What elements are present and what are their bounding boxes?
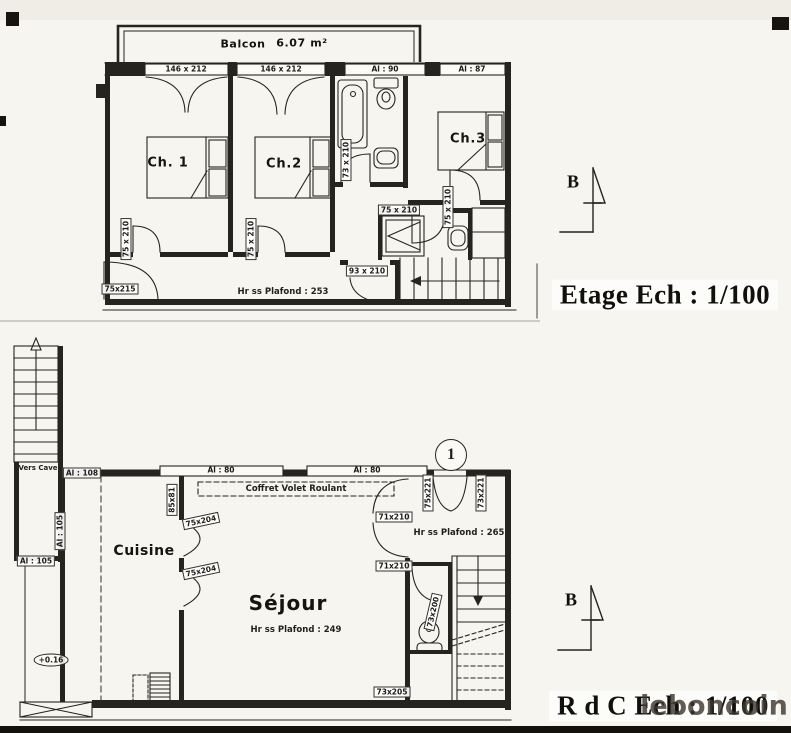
sink-bath bbox=[374, 148, 398, 168]
door-label-french-left: 75x221 bbox=[423, 475, 434, 512]
stairs-etage-arrowhead bbox=[410, 276, 421, 286]
window-label-al105-side: Al : 105 bbox=[55, 512, 66, 550]
door-label-hall: 93 x 210 bbox=[346, 266, 388, 277]
scan-artifacts bbox=[0, 12, 791, 733]
floorplan-page: Balcon 6.07 m² 146 x 212 146 x 212 Al : … bbox=[0, 0, 791, 733]
window-label-146x212-1: 146 x 212 bbox=[163, 65, 208, 74]
section-letter-rdc: B bbox=[565, 590, 577, 611]
stairs-vers-cave bbox=[14, 338, 58, 462]
vers-cave-label: Vers Cave bbox=[18, 464, 57, 472]
window-label-al87: Al : 87 bbox=[456, 65, 487, 74]
kitchen-appliances bbox=[133, 673, 170, 702]
room-label-ch2: Ch.2 bbox=[266, 157, 302, 172]
sink-shower-room bbox=[448, 226, 468, 250]
room-label-ch3: Ch.3 bbox=[450, 132, 486, 147]
ceiling-note-entry: Hr ss Plafond : 265 bbox=[414, 528, 505, 538]
window-label-al80-b: Al : 80 bbox=[351, 466, 382, 475]
door-label-rear: 73x205 bbox=[374, 687, 411, 698]
balcony-area-label: 6.07 m² bbox=[276, 37, 327, 50]
coffret-volet-roulant-label: Coffret Volet Roulant bbox=[246, 484, 347, 494]
window-label-146x212-2: 146 x 212 bbox=[258, 65, 303, 74]
room-label-cuisine: Cuisine bbox=[113, 543, 174, 559]
shower bbox=[382, 216, 424, 256]
room-label-ch1: Ch. 1 bbox=[147, 156, 188, 171]
window-label-al105-low: Al : 105 bbox=[17, 556, 55, 567]
door-label-bath: 73 x 210 bbox=[341, 139, 352, 181]
stairs-rdc bbox=[452, 556, 505, 700]
etage-title: Etage Ech : 1/100 bbox=[552, 280, 778, 311]
duct-shaft bbox=[472, 208, 505, 258]
ceiling-note-etage: Hr ss Plafond : 253 bbox=[238, 287, 329, 297]
door-label-shower: 75 x 210 bbox=[378, 205, 420, 216]
window-label-al90: Al : 90 bbox=[369, 65, 400, 74]
etage-door-arcs bbox=[104, 77, 480, 304]
stairs-rdc-arrowhead bbox=[473, 596, 483, 606]
window-label-al80-a: Al : 80 bbox=[205, 466, 236, 475]
bathtub bbox=[338, 80, 367, 148]
window-label-kitchen-85x81: 85x81 bbox=[167, 484, 178, 516]
stairs-cave-arrowhead bbox=[31, 338, 41, 350]
door-label-sejour-a: 71x210 bbox=[376, 512, 413, 523]
door-label-sejour-b: 71x210 bbox=[376, 561, 413, 572]
toilet-etage bbox=[374, 78, 398, 109]
leboncoin-watermark: leboncoin bbox=[640, 691, 788, 722]
door-label-entry-etage: 75x215 bbox=[102, 284, 139, 295]
balcony-outline bbox=[118, 26, 420, 62]
rdc-plan bbox=[14, 338, 603, 720]
position-marker-1: 1 bbox=[435, 439, 467, 471]
floorplan-linework bbox=[0, 0, 791, 733]
door-label-ch1: 75 x 210 bbox=[121, 218, 132, 260]
section-letter-etage: B bbox=[567, 172, 579, 193]
door-label-ch3: 75 x 210 bbox=[443, 186, 454, 228]
door-label-ch2: 75 x 210 bbox=[246, 218, 257, 260]
stairs-etage bbox=[400, 258, 499, 300]
ceiling-note-sejour: Hr ss Plafond : 249 bbox=[251, 625, 342, 635]
room-label-sejour: Séjour bbox=[249, 591, 328, 615]
level-marker: +0.16 bbox=[34, 654, 69, 667]
balcony-label: Balcon bbox=[220, 38, 265, 51]
window-label-al108: Al : 108 bbox=[63, 468, 101, 479]
door-label-french-right: 73x221 bbox=[476, 475, 487, 512]
